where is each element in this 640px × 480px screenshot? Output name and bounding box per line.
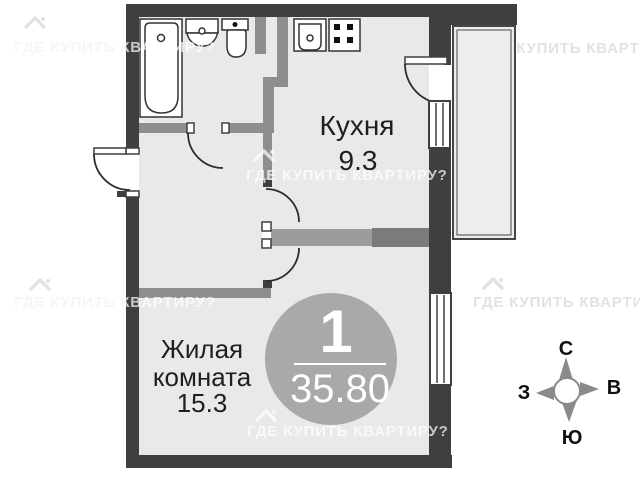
entrance-tick-bottom xyxy=(117,191,126,197)
house-logo-dot-icon xyxy=(499,278,503,282)
stove-frame xyxy=(329,19,360,51)
vent-duct-left xyxy=(255,17,266,54)
house-logo-dot-icon xyxy=(270,150,274,154)
entrance-door-leaf xyxy=(94,148,126,154)
watermark-text: ГДЕ КУПИТЬ КВАРТИРУ? xyxy=(473,294,640,311)
compass-north-point xyxy=(559,357,573,380)
stove-burner xyxy=(334,37,340,43)
house-logo-dot-icon xyxy=(272,410,276,414)
wall-left-upper xyxy=(126,4,139,148)
living-door-jamb xyxy=(262,239,271,248)
watermark-tile: ГДЕ КУПИТЬ КВАРТИРУ? xyxy=(473,278,640,311)
bathroom-jamb-right xyxy=(222,123,229,133)
watermark-text: ГДЕ КУПИТЬ КВАРТИРУ? xyxy=(247,423,449,440)
wall-top xyxy=(126,4,451,17)
wall-bottom xyxy=(126,455,452,468)
house-logo-dot-icon xyxy=(46,279,50,283)
bathtub-icon xyxy=(140,19,182,117)
entrance-door-swing xyxy=(94,154,130,190)
watermark-text: ГДЕ КУПИТЬ КВАРТИРУ? xyxy=(246,167,448,184)
stove-burner xyxy=(347,24,353,30)
floor-plan-image: ГДЕ КУПИТЬ КВАРТИРУ? ГДЕ КУПИТЬ КВАРТИРУ… xyxy=(0,0,640,480)
kitchen-window xyxy=(429,101,450,148)
wall-top-right-block xyxy=(443,4,517,25)
balcony-outline xyxy=(453,26,515,239)
vent-duct-connector xyxy=(263,77,288,87)
stove-burner xyxy=(347,37,353,43)
compass-north-label: С xyxy=(559,338,573,360)
wall-right-upper xyxy=(429,4,451,57)
entrance-cap-bottom xyxy=(126,191,139,197)
kitchen-label: Кухня xyxy=(320,110,395,141)
wall-left-lower xyxy=(126,191,139,468)
entrance-cap-top xyxy=(126,148,139,154)
house-logo-dot-icon xyxy=(41,17,45,21)
toilet-button xyxy=(233,22,238,27)
compass: С В Ю З xyxy=(518,338,621,449)
kitchen-living-divider-dark xyxy=(372,228,429,247)
balcony-door-leaf xyxy=(405,57,447,64)
bathroom-wall-right xyxy=(229,123,263,133)
toilet-bowl xyxy=(227,30,246,57)
watermark-text: ГДЕ КУПИТЬ КВАРТИРУ? xyxy=(14,39,216,56)
compass-hub xyxy=(554,378,580,404)
compass-east-point xyxy=(580,382,599,396)
stove-burner xyxy=(334,24,340,30)
badge-rooms-count: 1 xyxy=(319,298,352,365)
sink-drain xyxy=(199,28,205,34)
bathroom-wall-left xyxy=(139,123,187,133)
watermark-tile-echo: ГДЕ КУПИТЬ КВАРТИРУ? xyxy=(14,294,216,311)
wall-right-lower xyxy=(429,385,451,455)
balcony xyxy=(453,26,515,239)
compass-west-point xyxy=(536,386,554,400)
kitchen-sink-icon xyxy=(294,19,326,51)
watermark-tile-echo: ГДЕ КУПИТЬ КВАРТИРУ? xyxy=(14,39,216,56)
living-label-line1: Жилая xyxy=(161,334,243,364)
vent-duct-lower xyxy=(263,87,274,133)
living-area: 15.3 xyxy=(177,388,228,418)
floor-plan-svg: ГДЕ КУПИТЬ КВАРТИРУ? ГДЕ КУПИТЬ КВАРТИРУ… xyxy=(0,0,640,480)
area-badge: 1 35.80 xyxy=(265,293,397,425)
kitchen-living-divider-light xyxy=(271,229,372,246)
living-window xyxy=(430,293,451,385)
kitchen-window-frame xyxy=(429,101,450,148)
stove-icon xyxy=(329,19,360,51)
watermark-text: ГДЕ КУПИТЬ КВАРТИРУ? xyxy=(14,294,216,311)
badge-total-area: 35.80 xyxy=(290,367,390,411)
bathroom-jamb-left xyxy=(187,123,194,133)
kitchen-sink-drain xyxy=(307,35,313,41)
vent-duct-right xyxy=(277,17,288,87)
living-window-frame xyxy=(430,293,451,385)
kitchen-door-jamb xyxy=(262,222,271,231)
compass-south-label: Ю xyxy=(562,427,583,449)
compass-west-label: З xyxy=(518,382,531,404)
compass-east-label: В xyxy=(607,377,621,399)
